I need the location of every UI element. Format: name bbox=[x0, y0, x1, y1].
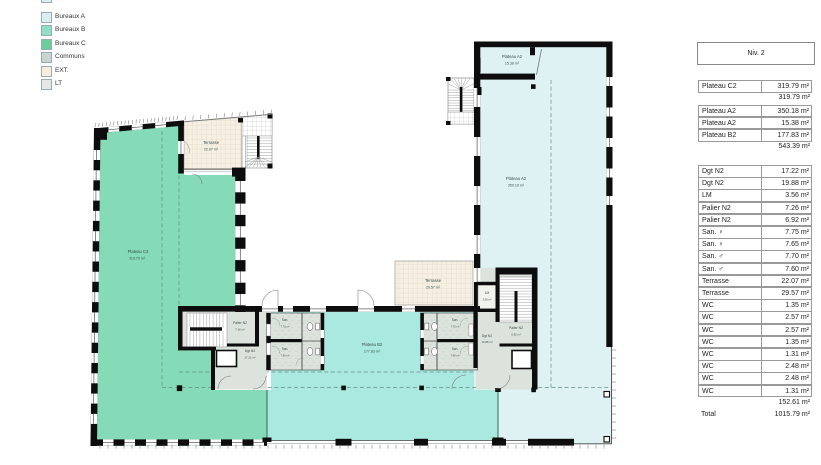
svg-text:7.70 m²: 7.70 m² bbox=[451, 324, 460, 328]
svg-text:San.: San. bbox=[452, 318, 459, 322]
svg-text:Terrasse: Terrasse bbox=[425, 278, 442, 283]
svg-text:7.65 m²: 7.65 m² bbox=[281, 353, 290, 357]
svg-text:Dgt N2: Dgt N2 bbox=[482, 334, 493, 338]
svg-text:Plateau A2: Plateau A2 bbox=[502, 54, 523, 59]
svg-text:319.79 m²: 319.79 m² bbox=[129, 256, 146, 260]
svg-text:7.75 m²: 7.75 m² bbox=[281, 324, 290, 328]
svg-text:Plateau B2: Plateau B2 bbox=[362, 342, 383, 347]
svg-text:15.38 m²: 15.38 m² bbox=[505, 61, 520, 65]
svg-text:Dgt N2: Dgt N2 bbox=[245, 349, 256, 353]
svg-text:Palier N2: Palier N2 bbox=[509, 326, 523, 330]
svg-text:7.26 m²: 7.26 m² bbox=[235, 327, 245, 331]
svg-text:San.: San. bbox=[282, 347, 289, 351]
svg-text:177.83 m²: 177.83 m² bbox=[364, 349, 381, 353]
svg-text:Terrasse: Terrasse bbox=[203, 140, 220, 145]
svg-text:Plateau C2: Plateau C2 bbox=[128, 249, 149, 254]
svg-text:Plateau A2: Plateau A2 bbox=[506, 176, 527, 181]
svg-text:LM: LM bbox=[485, 291, 490, 295]
svg-text:19.88 m²: 19.88 m² bbox=[481, 340, 492, 344]
svg-text:22.07 m²: 22.07 m² bbox=[204, 147, 219, 151]
svg-text:7.60 m²: 7.60 m² bbox=[451, 353, 460, 357]
svg-text:17.22 m²: 17.22 m² bbox=[244, 355, 255, 359]
svg-text:350.18 m²: 350.18 m² bbox=[508, 183, 525, 187]
svg-text:29.57 m²: 29.57 m² bbox=[426, 285, 441, 289]
svg-text:San.: San. bbox=[282, 318, 289, 322]
svg-text:3.56 m²: 3.56 m² bbox=[483, 297, 492, 301]
svg-text:6.92 m²: 6.92 m² bbox=[511, 332, 521, 336]
svg-text:Palier N2: Palier N2 bbox=[233, 321, 247, 325]
svg-text:San.: San. bbox=[452, 347, 459, 351]
